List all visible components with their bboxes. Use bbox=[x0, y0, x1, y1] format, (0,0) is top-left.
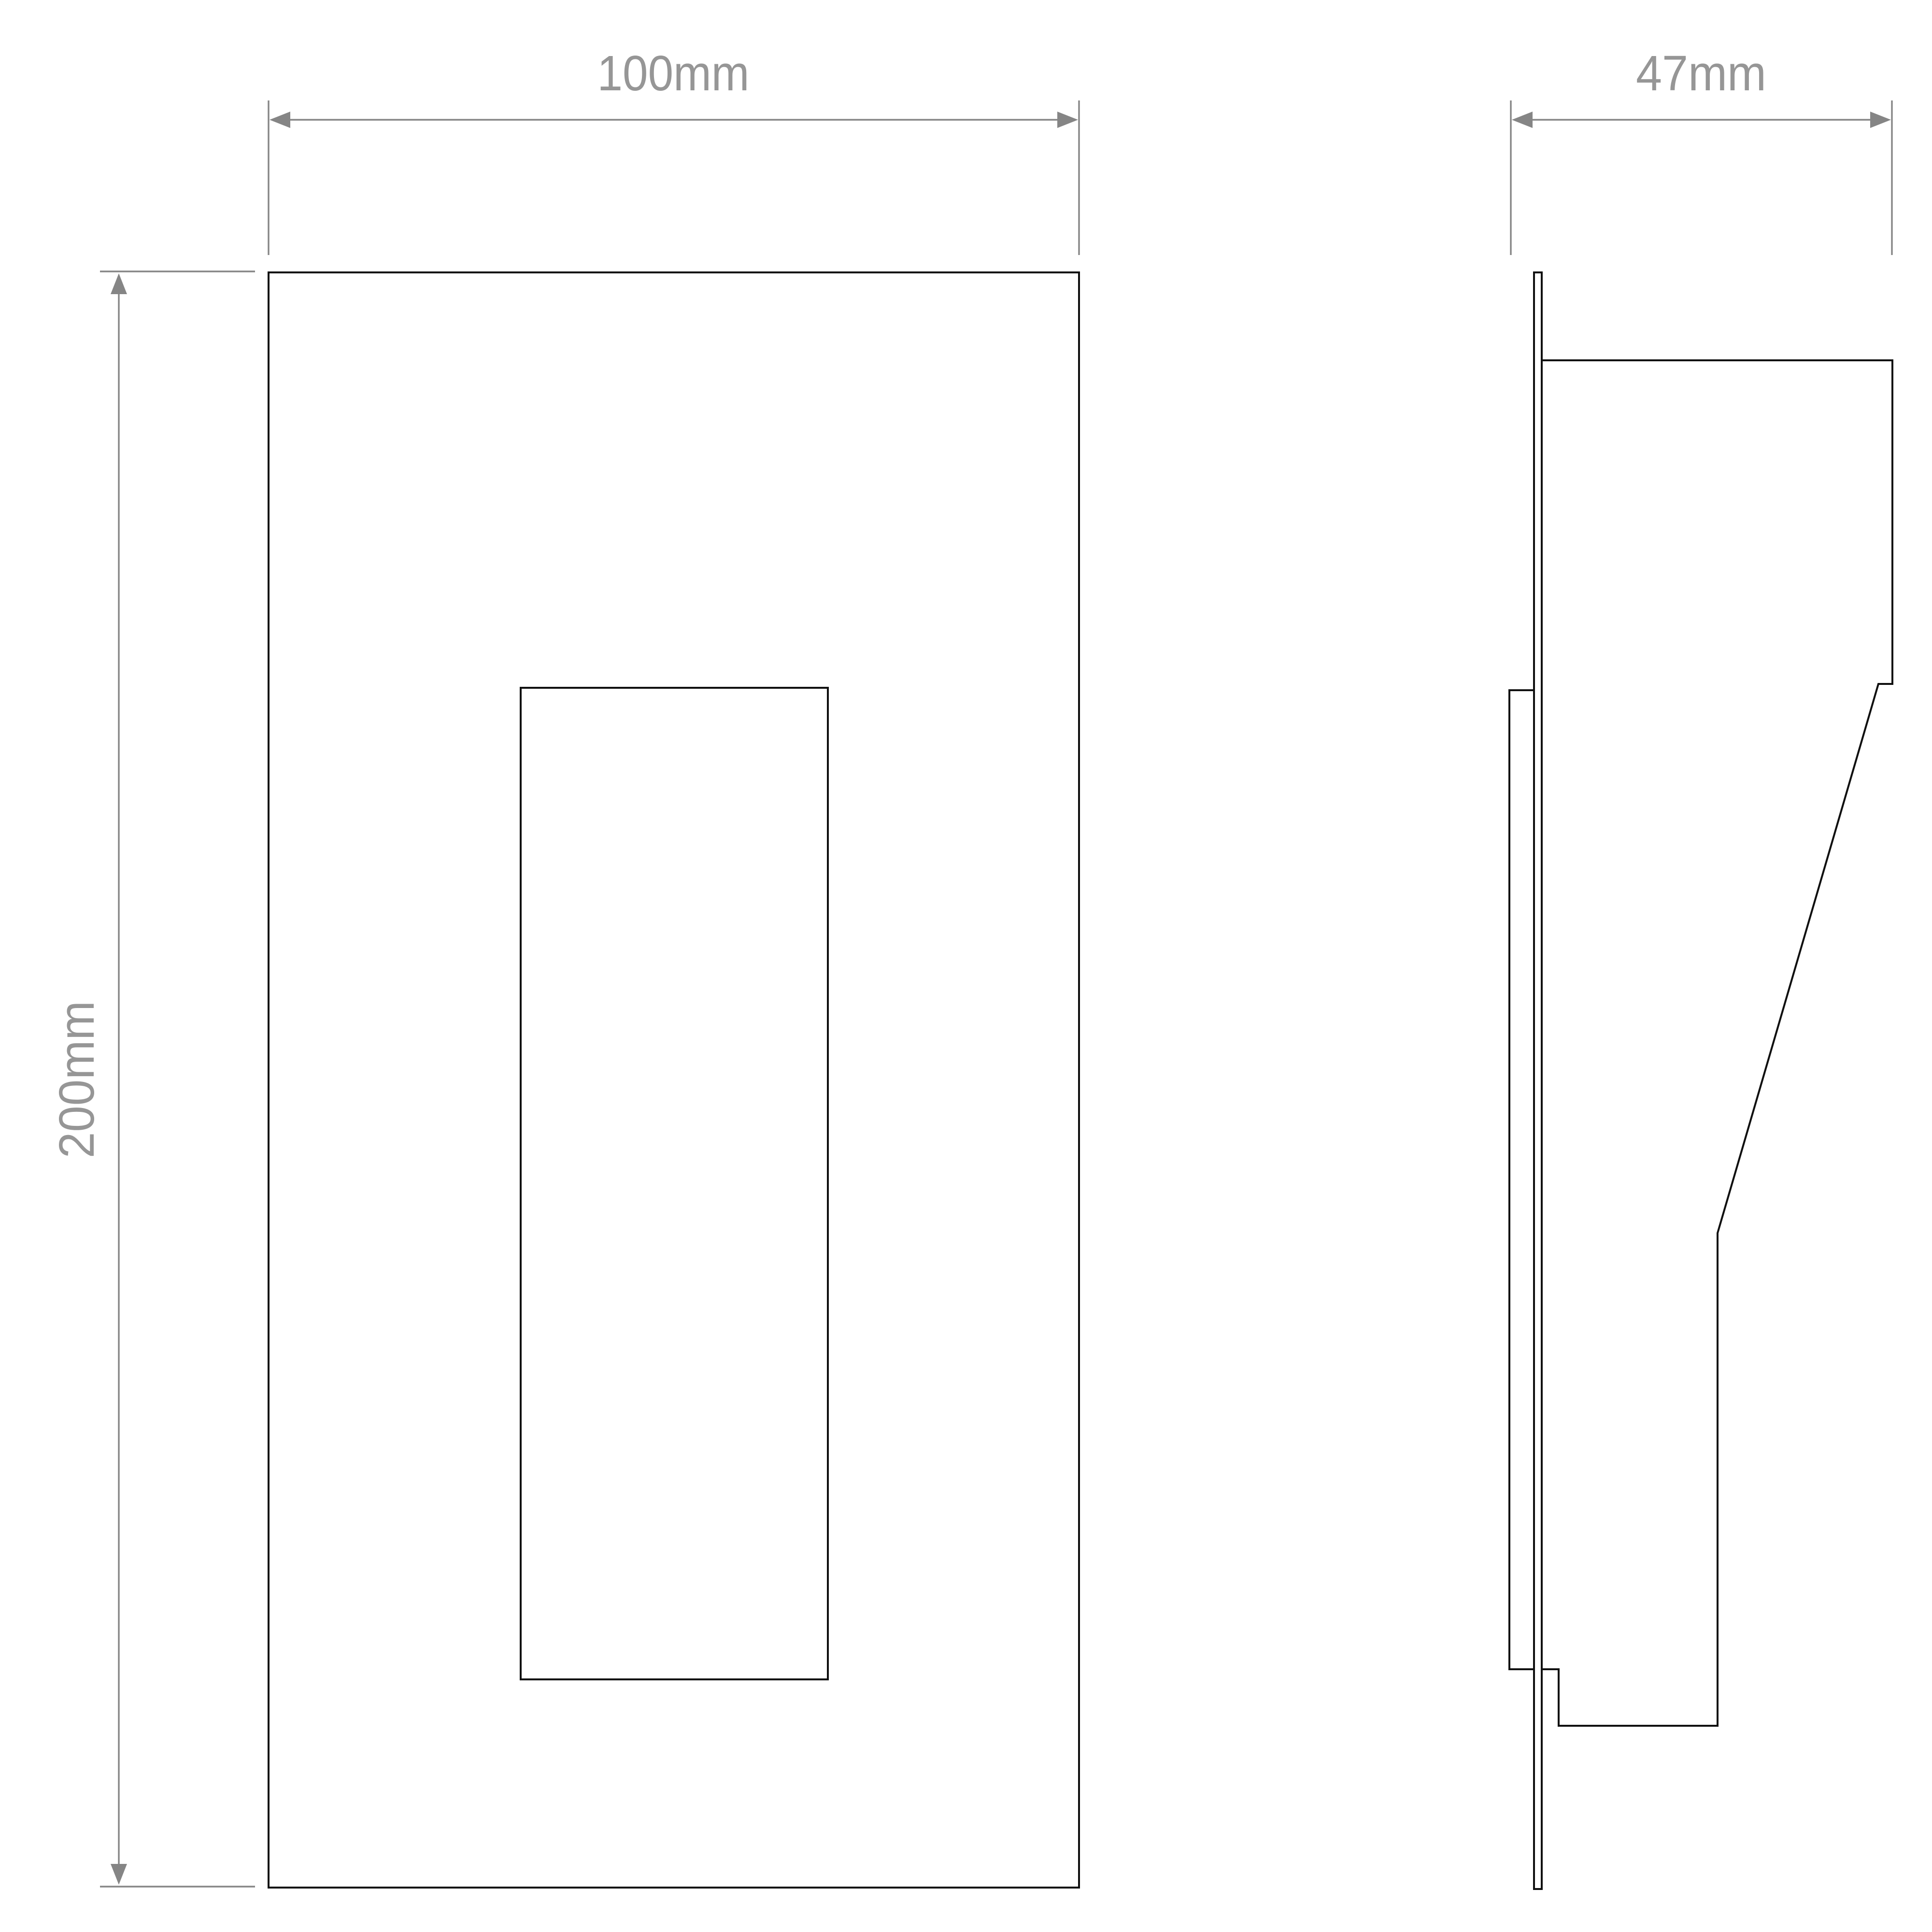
svg-text:200mm: 200mm bbox=[49, 1001, 104, 1158]
svg-text:100mm: 100mm bbox=[597, 45, 750, 101]
svg-text:47mm: 47mm bbox=[1636, 45, 1766, 101]
